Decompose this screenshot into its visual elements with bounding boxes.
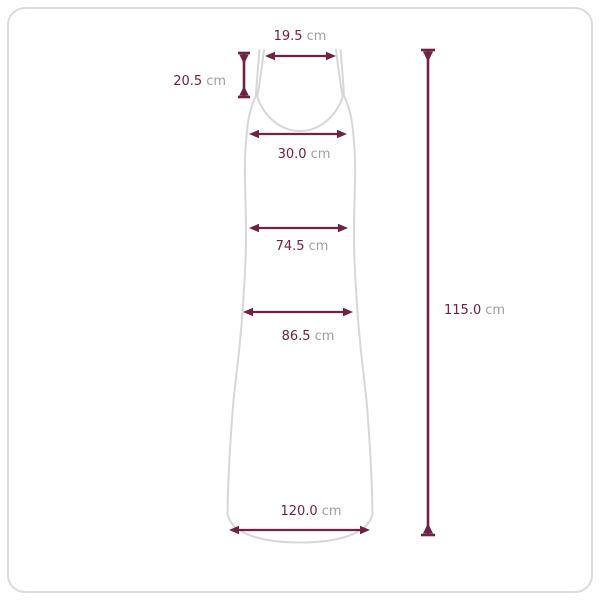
strap-length-label: 20.5cm [120, 72, 226, 92]
strap-width-left-arrow-icon [265, 52, 275, 60]
bust-width-value: 30.0 [278, 147, 307, 162]
strap-width-dimension [265, 52, 336, 60]
strap-length-bottom-arrow-icon [239, 86, 248, 96]
strap-length-dimension [238, 53, 250, 97]
strap-length-unit: cm [206, 74, 226, 89]
hip-width-dimension [243, 308, 353, 316]
dress-outline [228, 50, 373, 543]
hip-width-label: 86.5cm [248, 327, 368, 347]
total-length-dimension [421, 50, 435, 535]
waist-width-label: 74.5cm [242, 237, 362, 257]
total-length-label: 115.0cm [444, 301, 505, 321]
strap-length-value: 20.5 [173, 74, 202, 89]
total-length-bottom-arrow-icon [423, 523, 433, 534]
strap-width-label: 19.5cm [240, 27, 360, 47]
hem-width-left-arrow-icon [229, 526, 239, 534]
strap-width-value: 19.5 [274, 29, 303, 44]
strap-width-right-arrow-icon [326, 52, 336, 60]
hem-width-dimension [229, 526, 370, 534]
hem-width-value: 120.0 [280, 504, 317, 519]
bust-width-label: 30.0cm [244, 145, 364, 165]
bust-width-right-arrow-icon [337, 130, 347, 138]
total-length-top-arrow-icon [423, 52, 433, 63]
strap-length-top-arrow-icon [239, 55, 248, 65]
waist-width-right-arrow-icon [338, 224, 348, 232]
total-length-value: 115.0 [444, 303, 481, 318]
hip-width-right-arrow-icon [343, 308, 353, 316]
waist-width-unit: cm [309, 239, 329, 254]
total-length-unit: cm [485, 303, 505, 318]
hem-width-label: 120.0cm [251, 502, 371, 522]
hip-width-unit: cm [315, 329, 335, 344]
strap-width-unit: cm [307, 29, 327, 44]
waist-width-value: 74.5 [276, 239, 305, 254]
hip-width-left-arrow-icon [243, 308, 253, 316]
bust-width-unit: cm [311, 147, 331, 162]
bust-width-left-arrow-icon [249, 130, 259, 138]
neckline-curve [257, 95, 344, 132]
hem-width-unit: cm [322, 504, 342, 519]
hip-width-value: 86.5 [282, 329, 311, 344]
waist-width-dimension [249, 224, 348, 232]
waist-width-left-arrow-icon [249, 224, 259, 232]
